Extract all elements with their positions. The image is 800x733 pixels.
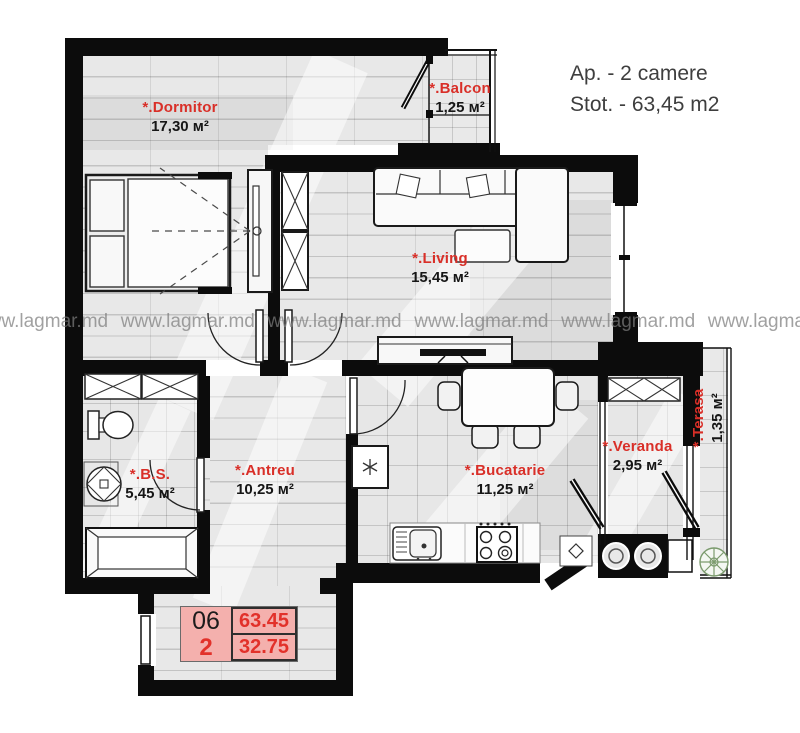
watermark-text: www.lagmar.md xyxy=(0,311,108,333)
room-name-dormitor: *.Dormitor xyxy=(115,99,245,117)
wall-mid-a xyxy=(83,360,206,376)
total-area: Stot. - 63,45 m2 xyxy=(570,89,719,120)
room-label-balcon: *.Balcon 1,25 м² xyxy=(420,80,500,117)
room-name-antreu: *.Antreu xyxy=(200,462,330,480)
room-area-living: 15,45 м² xyxy=(375,269,505,287)
wall-living-right-a xyxy=(613,172,638,203)
wall-living-top xyxy=(265,155,638,172)
room-name-living: *.Living xyxy=(375,250,505,268)
room-label-bs: *.B.S. 5,45 м² xyxy=(95,466,205,503)
door-entrance xyxy=(136,609,156,670)
watermark-text: www.lagmar.md xyxy=(561,311,695,333)
apartment-type: Ap. - 2 camere xyxy=(570,58,719,89)
room-label-dormitor: *.Dormitor 17,30 м² xyxy=(115,99,245,136)
room-name-terasa: *.Terasa xyxy=(690,363,708,473)
wall-bs-right-a xyxy=(197,376,210,458)
room-label-veranda: *.Veranda 2,95 м² xyxy=(585,438,690,475)
wall-kitchen-bottom xyxy=(346,563,540,583)
room-name-bucatarie: *.Bucatarie xyxy=(440,462,570,480)
room-area-dormitor: 17,30 м² xyxy=(115,118,245,136)
room-area-bucatarie: 11,25 м² xyxy=(440,481,570,499)
room-label-living: *.Living 15,45 м² xyxy=(375,250,505,287)
unit-info-right-column: 63.45 32.75 xyxy=(231,607,297,661)
wall-entry-bottom xyxy=(138,680,353,696)
wall-balcon-bottom xyxy=(398,143,500,157)
window-living xyxy=(611,200,640,318)
room-name-balcon: *.Balcon xyxy=(420,80,500,98)
wall-mid-b xyxy=(260,360,288,376)
watermark-text: www.lagmar.md xyxy=(708,311,800,333)
room-area-veranda: 2,95 м² xyxy=(585,457,690,475)
living-area-value: 32.75 xyxy=(233,635,295,659)
wall-mid-c xyxy=(342,360,603,376)
room-label-bucatarie: *.Bucatarie 11,25 м² xyxy=(440,462,570,499)
total-area-value: 63.45 xyxy=(233,609,295,635)
room-name-veranda: *.Veranda xyxy=(585,438,690,456)
wall-top xyxy=(65,38,448,56)
room-label-terasa: *.Terasa 1,35 м² xyxy=(690,363,726,473)
room-name-bs: *.B.S. xyxy=(95,466,205,484)
plan-header: Ap. - 2 camere Stot. - 63,45 m2 xyxy=(570,58,719,120)
watermark-text: www.lagmar.md xyxy=(268,311,402,333)
wall-bs-right-b xyxy=(197,510,210,578)
room-area-balcon: 1,25 м² xyxy=(420,99,500,117)
unit-info-left-column: 06 2 xyxy=(181,607,231,661)
room-area-terasa: 1,35 м² xyxy=(709,363,727,473)
room-label-antreu: *.Antreu 10,25 м² xyxy=(200,462,330,499)
watermark-text: www.lagmar.md xyxy=(121,311,255,333)
floorplan-canvas: *.Dormitor 17,30 м² *.Balcon 1,25 м² *.L… xyxy=(0,0,800,733)
watermark-text: www.lagmar.md xyxy=(414,311,548,333)
wall-entry-left-a xyxy=(138,586,154,616)
wall-veranda-div-cap xyxy=(598,376,608,402)
rooms-count: 2 xyxy=(181,635,231,661)
wall-kitchen-left xyxy=(346,434,358,563)
unit-number: 06 xyxy=(181,607,231,635)
room-area-bs: 5,45 м² xyxy=(95,485,205,503)
room-area-antreu: 10,25 м² xyxy=(200,481,330,499)
unit-info-table: 06 2 63.45 32.75 xyxy=(180,606,298,662)
wall-veranda-div-bot xyxy=(598,545,608,563)
watermark-row: www.lagmar.md www.lagmar.md www.lagmar.m… xyxy=(0,311,800,333)
